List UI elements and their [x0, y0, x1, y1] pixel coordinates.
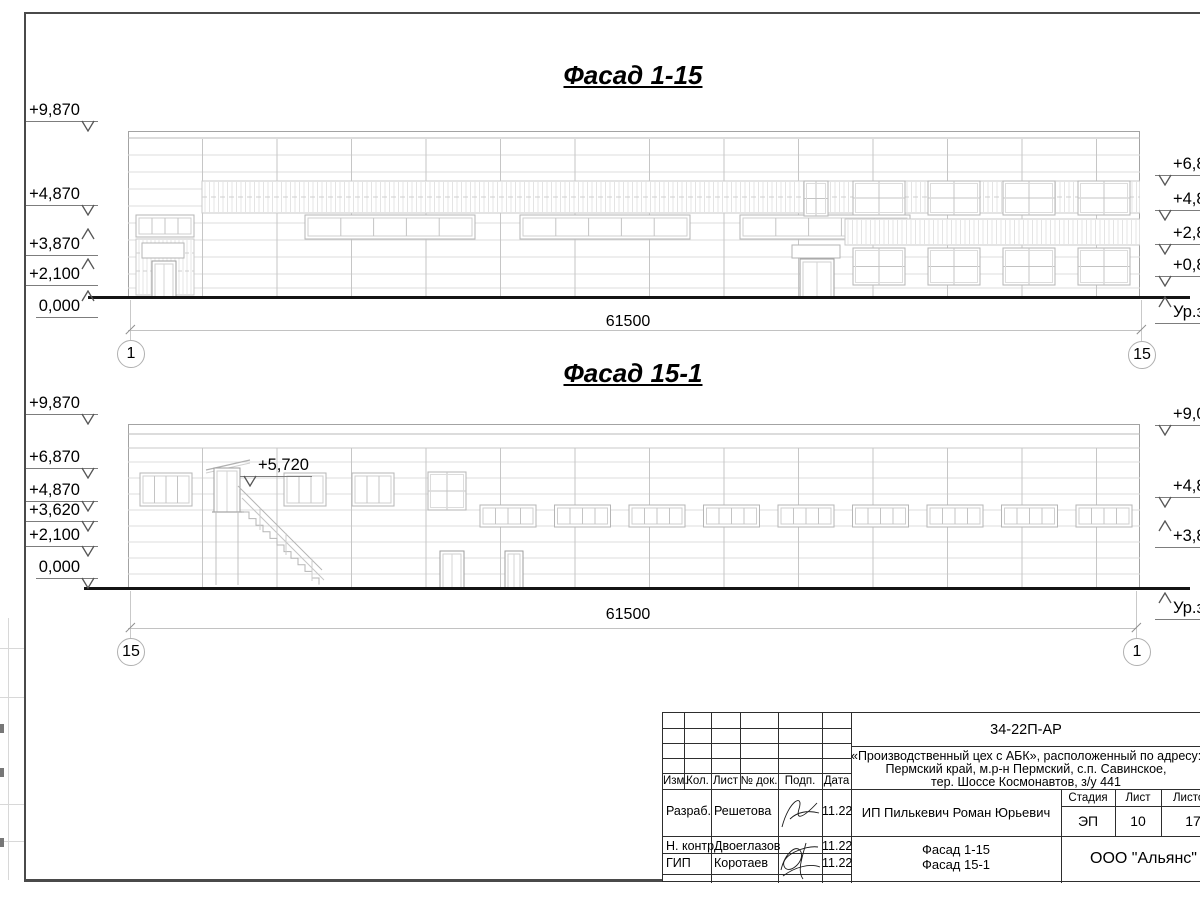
row1-date: 11.22 [822, 804, 851, 818]
elevation-value: +4,870 [26, 481, 98, 502]
elevation-value: +4,870 [1155, 477, 1200, 498]
left-margin-text-fragment [0, 768, 4, 777]
elevation-arrow-up-icon [81, 228, 95, 240]
elevation-arrow-down-icon [1158, 424, 1172, 436]
stamp-line [663, 758, 851, 759]
elevation-arrow-down-icon [1158, 496, 1172, 508]
left-margin-line [0, 648, 24, 649]
row3-date: 11.22 [822, 856, 851, 870]
elevation-value: +4,870 [26, 185, 98, 206]
row3-role: ГИП [666, 856, 691, 870]
ground-level-mark: Ур.земли [1155, 303, 1200, 323]
elevation-mark: +0,870 [1155, 256, 1200, 276]
ribbon-window [305, 215, 475, 239]
facade-15-1-title: Фасад 15-1 [523, 358, 743, 389]
entrance-canopy [142, 243, 184, 258]
axis-marker-15: 15 [117, 638, 145, 666]
facade-1-15-svg [128, 131, 1140, 297]
ground-line-facade2 [84, 587, 1190, 590]
dimension-value: 61500 [578, 313, 678, 331]
sheet-content-line2: Фасад 15-1 [851, 857, 1061, 872]
stamp-line [663, 743, 851, 744]
ribbon-window [520, 215, 690, 239]
elevation-arrow-up-icon [1158, 296, 1172, 308]
elevation-value: +3,620 [26, 501, 98, 522]
elevation-mark: +9,050 [1155, 405, 1200, 425]
elevation-mark: 0,000 [36, 297, 98, 317]
elevation-mark: +3,620 [26, 501, 98, 521]
stamp-line [663, 789, 1200, 790]
sheet-content-line1: Фасад 1-15 [851, 842, 1061, 857]
col-header-list: Лист [711, 775, 740, 787]
elevation-mark: +6,870 [1155, 155, 1200, 175]
elevation-arrow-down-icon [81, 413, 95, 425]
elevation-arrow-down-icon [81, 577, 95, 589]
elevation-mark: +4,870 [1155, 190, 1200, 210]
row2-name: Двоеглазов [714, 839, 780, 853]
elevation-value: +2,100 [26, 526, 98, 547]
elevation-arrow-down-icon [1158, 243, 1172, 255]
extension-line [130, 591, 131, 638]
facade-1-15-drawing [128, 131, 1140, 297]
ribbon-window [352, 473, 394, 506]
stage-label: Стадия [1061, 792, 1115, 804]
stage-value: ЭП [1061, 813, 1115, 829]
elevation-mark: +9,870 [26, 101, 98, 121]
elevation-value: +0,870 [1155, 256, 1200, 277]
extension-line [130, 300, 131, 340]
elevation-arrow-down-icon [81, 204, 95, 216]
elevation-arrow-down-icon [243, 475, 257, 487]
signature-nkontr-gip [775, 838, 823, 881]
elevation-mark: +4,870 [26, 481, 98, 501]
elevation-arrow-down-icon [81, 545, 95, 557]
elevation-value: +6,870 [26, 448, 98, 469]
elevation-mark: +4,870 [1155, 477, 1200, 497]
project-address-line2: Пермский край, м.р-н Пермский, с.п. Сави… [851, 762, 1200, 776]
title-block: 34-22П-АР «Производственный цех с АБК», … [662, 712, 1200, 882]
elevation-arrow-down-icon [1158, 275, 1172, 287]
row3-name: Коротаев [714, 856, 768, 870]
elevation-mark: +3,870 [26, 235, 98, 255]
elevation-value: +9,870 [26, 394, 98, 415]
col-header-izm: Изм. [663, 775, 684, 787]
elevation-value: +9,050 [1155, 405, 1200, 426]
facade-outline [129, 132, 1140, 297]
elevation-value: +6,870 [1155, 155, 1200, 176]
sheet-frame-left [24, 12, 26, 881]
project-address-line3: тер. Шоссе Космонавтов, з/у 441 [851, 775, 1200, 789]
ribbon-window [284, 473, 326, 506]
organization-name: ООО "Альянс" [1061, 850, 1200, 868]
sheet-frame-top [24, 12, 1200, 14]
stamp-line [851, 746, 1200, 747]
facade-1-15-title: Фасад 1-15 [523, 60, 743, 91]
elevation-mark: +4,870 [26, 185, 98, 205]
elevation-value: +4,870 [1155, 190, 1200, 211]
facade-15-1-svg [128, 424, 1140, 589]
row1-role: Разраб. [666, 804, 711, 818]
elevation-arrow-down-icon [1158, 174, 1172, 186]
row2-role: Н. контр. [666, 839, 718, 853]
elevation-arrow-down-icon [81, 120, 95, 132]
dimension-value: 61500 [578, 606, 678, 624]
left-margin-line [0, 804, 24, 805]
elevation-value: +2,870 [1155, 224, 1200, 245]
stamp-line [711, 713, 712, 883]
elevation-mark: +3,870 [1155, 527, 1200, 547]
elevation-value: 0,000 [36, 558, 98, 579]
sheet-number: 10 [1115, 813, 1161, 829]
signature-razrab [777, 790, 823, 835]
sheet-label: Лист [1115, 792, 1161, 804]
project-address-line1: «Производственный цех с АБК», расположен… [851, 749, 1200, 763]
left-margin-line [0, 697, 24, 698]
elevation-mark: +9,870 [26, 394, 98, 414]
sheets-total: 17 [1161, 813, 1200, 829]
elevation-arrow-up-icon [1158, 520, 1172, 532]
dimension-line [128, 628, 1137, 629]
elevation-value: +9,870 [26, 101, 98, 122]
row1-name: Решетова [714, 804, 771, 818]
stair-elevation-annotation: +5,720 [240, 456, 312, 476]
left-margin-text-fragment [0, 724, 4, 733]
stamp-line [663, 728, 851, 729]
left-margin-text-fragment [0, 838, 4, 847]
client-name: ИП Пилькевич Роман Юрьевич [851, 805, 1061, 820]
col-header-kol: Кол. [684, 775, 711, 787]
extension-line [1136, 591, 1137, 638]
elevation-mark: +2,100 [26, 526, 98, 546]
elevation-mark: 0,000 [36, 558, 98, 578]
elevation-arrow-up-icon [1158, 592, 1172, 604]
axis-marker-15: 15 [1128, 341, 1156, 369]
elevation-value: +5,720 [240, 456, 312, 477]
elevation-arrow-down-icon [81, 467, 95, 479]
elevation-arrow-down-icon [1158, 209, 1172, 221]
extension-line [1141, 300, 1142, 341]
col-header-doc: № док. [740, 775, 778, 787]
elevation-mark: +6,870 [26, 448, 98, 468]
col-header-podp: Подп. [778, 775, 822, 787]
axis-marker-1: 1 [117, 340, 145, 368]
elevation-mark: +2,100 [26, 265, 98, 285]
col-header-data: Дата [822, 775, 851, 787]
stamp-line [1061, 806, 1200, 807]
elevation-arrow-up-icon [81, 258, 95, 270]
ground-line-facade1 [88, 296, 1190, 299]
entrance-canopy [792, 245, 840, 258]
stamp-line [663, 773, 851, 774]
elevation-arrow-up-icon [81, 290, 95, 302]
row2-date: 11.22 [822, 839, 851, 853]
elevation-mark: +2,870 [1155, 224, 1200, 244]
facade-15-1-drawing [128, 424, 1140, 589]
sheets-total-label: Листов [1173, 792, 1200, 804]
ground-level-mark: Ур.земли [1155, 599, 1200, 619]
document-code: 34-22П-АР [851, 722, 1200, 738]
axis-marker-1: 1 [1123, 638, 1151, 666]
stamp-line [663, 836, 1200, 837]
